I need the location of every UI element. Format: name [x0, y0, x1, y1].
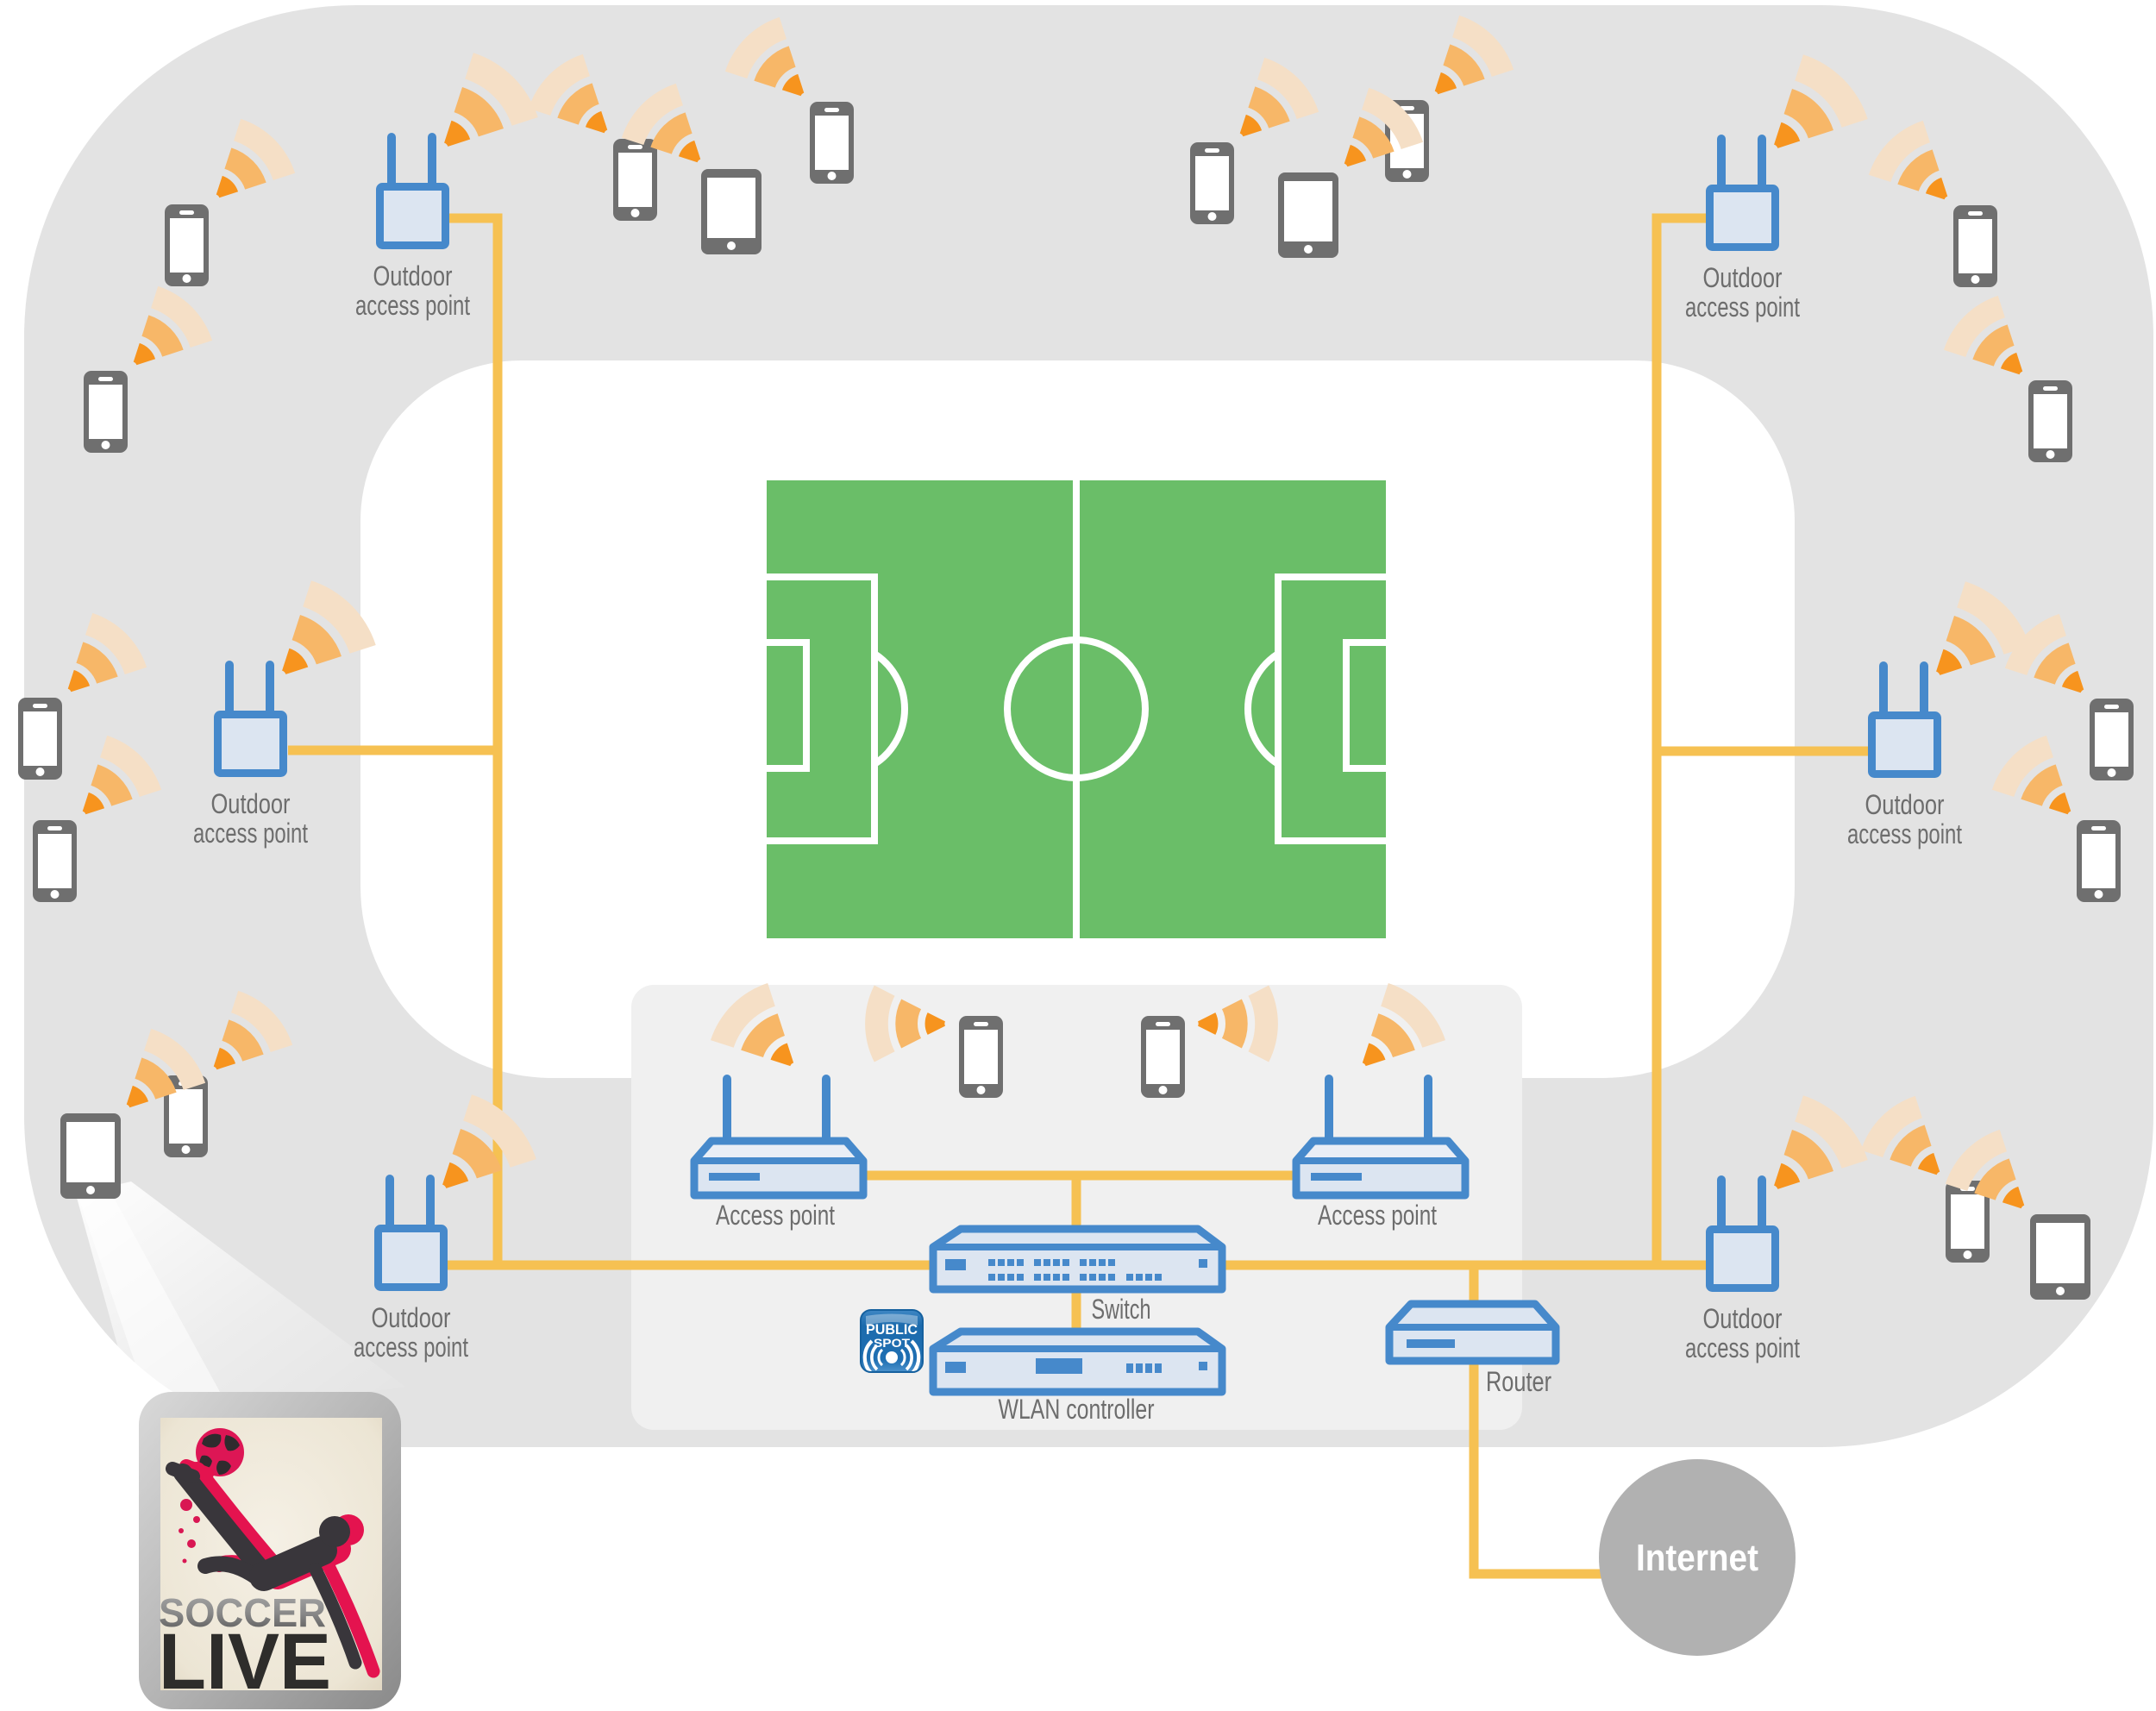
svg-text:LIVE: LIVE	[159, 1618, 331, 1706]
svg-text:Outdoor: Outdoor	[373, 260, 453, 291]
svg-text:access point: access point	[1685, 1332, 1800, 1363]
svg-text:Internet: Internet	[1636, 1537, 1758, 1579]
svg-text:SPOT: SPOT	[874, 1336, 910, 1350]
svg-text:Outdoor: Outdoor	[1703, 1303, 1783, 1334]
svg-text:Outdoor: Outdoor	[211, 788, 291, 819]
svg-text:Access point: Access point	[716, 1200, 835, 1231]
svg-text:Outdoor: Outdoor	[1703, 262, 1783, 293]
svg-text:Outdoor: Outdoor	[372, 1302, 451, 1333]
svg-text:WLAN controller: WLAN controller	[999, 1394, 1155, 1425]
svg-text:access point: access point	[355, 290, 470, 321]
svg-text:access point: access point	[193, 818, 308, 849]
svg-text:access point: access point	[1847, 818, 1962, 849]
svg-text:Outdoor: Outdoor	[1865, 789, 1945, 820]
svg-text:Switch: Switch	[1092, 1294, 1151, 1325]
svg-text:access point: access point	[354, 1332, 468, 1363]
svg-text:Access point: Access point	[1318, 1200, 1437, 1231]
svg-text:Router: Router	[1486, 1366, 1551, 1397]
svg-text:access point: access point	[1685, 291, 1800, 323]
